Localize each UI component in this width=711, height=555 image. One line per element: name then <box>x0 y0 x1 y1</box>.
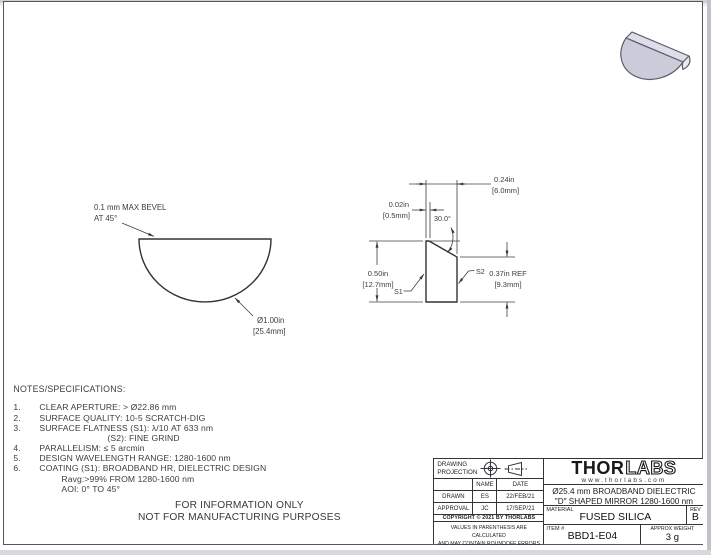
bevel-note-line2: AT 45° <box>94 214 117 223</box>
title-block-left: DRAWING PROJECTION <box>434 459 544 544</box>
approval-name: JC <box>473 503 497 515</box>
dim-flat-mm: [0.5mm] <box>383 211 410 220</box>
drawn-date: 22/FEB/21 <box>497 491 543 503</box>
note-row: 6. COATING (S1): BROADBAND HR, DIELECTRI… <box>13 463 343 473</box>
note-text: (S2): FINE GRIND <box>39 433 179 443</box>
table-cell-empty <box>434 479 473 491</box>
diameter-label-in: Ø1.00in <box>257 316 284 325</box>
approval-label: APPROVAL <box>434 503 473 515</box>
weight-cell: APPROX WEIGHT 3 g <box>640 525 703 544</box>
projection-label-line2: PROJECTION <box>437 469 477 477</box>
dim-height-in: 0.50in <box>368 269 388 278</box>
note-text: AOI: 0° TO 45° <box>39 484 120 494</box>
drawn-name: ES <box>473 491 497 503</box>
product-title-line1: Ø25.4 mm BROADBAND DIELECTRIC <box>544 487 703 497</box>
note-text: SURFACE FLATNESS (S1): λ/10 AT 633 nm <box>39 423 213 433</box>
product-title-line2: "D" SHAPED MIRROR 1280-1600 nm <box>544 497 703 507</box>
notes-heading: NOTES/SPECIFICATIONS: <box>13 384 343 394</box>
note-row: AOI: 0° TO 45° <box>13 484 343 494</box>
note-text: SURFACE QUALITY: 10-5 SCRATCH-DIG <box>39 413 205 423</box>
note-number <box>13 474 39 484</box>
note-number: 1. <box>13 402 39 412</box>
note-number: 2. <box>13 413 39 423</box>
drawn-label: DRAWN <box>434 491 473 503</box>
logo-thor: THOR <box>571 458 624 478</box>
note-text: CLEAR APERTURE: > Ø22.86 mm <box>39 402 176 412</box>
table-header-name: NAME <box>473 479 497 491</box>
material-cell: MATERIAL FUSED SILICA <box>544 506 686 524</box>
disclaimer-line1: VALUES IN PARENTHESIS ARE CALCULATED <box>434 525 543 541</box>
note-number: 3. <box>13 423 39 433</box>
disclaimer-note: VALUES IN PARENTHESIS ARE CALCULATED AND… <box>434 522 543 548</box>
projection-target-icon <box>477 459 504 478</box>
side-view <box>426 241 457 302</box>
dim-height-mm: [12.7mm] <box>363 280 394 289</box>
iso-view <box>621 32 690 79</box>
note-number: 4. <box>13 443 39 453</box>
approval-table: NAME DATE DRAWN ES 22/FEB/21 APPROVAL JC… <box>434 479 543 515</box>
product-title: Ø25.4 mm BROADBAND DIELECTRIC "D" SHAPED… <box>544 485 703 506</box>
note-number <box>13 484 39 494</box>
note-text: Ravg:>99% FROM 1280-1600 nm <box>39 474 194 484</box>
dim-width-in: 0.24in <box>494 175 514 184</box>
notes-section: NOTES/SPECIFICATIONS: 1. CLEAR APERTURE:… <box>13 384 343 493</box>
item-value: BBD1-E04 <box>544 530 640 542</box>
note-text: COATING (S1): BROADBAND HR, DIELECTRIC D… <box>39 463 266 473</box>
note-row: 1. CLEAR APERTURE: > Ø22.86 mm <box>13 402 343 412</box>
weight-value: 3 g <box>641 532 703 543</box>
drawing-canvas: 0.1 mm MAX BEVEL AT 45° Ø1.00in [25.4mm] <box>0 0 710 554</box>
disclaimer-line2: AND MAY CONTAIN ROUNDOFF ERRORS <box>434 541 543 549</box>
note-row: 5. DESIGN WAVELENGTH RANGE: 1280-1600 nm <box>13 453 343 463</box>
drawing-sheet: 0.1 mm MAX BEVEL AT 45° Ø1.00in [25.4mm] <box>3 1 703 545</box>
thorlabs-logo-text: THORLABS <box>544 460 703 477</box>
rev-value: B <box>687 511 703 523</box>
approval-date: 17/SEP/21 <box>497 503 543 515</box>
diameter-label-mm: [25.4mm] <box>253 327 286 336</box>
material-value: FUSED SILICA <box>544 511 686 523</box>
note-text: PARALLELISM: ≤ 5 arcmin <box>39 443 144 453</box>
s2-leader-line <box>459 271 475 284</box>
thorlabs-website: www.thorlabs.com <box>544 477 703 484</box>
note-number: 6. <box>13 463 39 473</box>
front-view <box>139 239 271 302</box>
title-block-right: THORLABS www.thorlabs.com Ø25.4 mm BROAD… <box>544 459 703 544</box>
title-block: DRAWING PROJECTION <box>433 458 703 544</box>
drawing-projection-cell: DRAWING PROJECTION <box>434 459 543 479</box>
dim-width-mm: [6.0mm] <box>492 186 519 195</box>
s1-leader-line <box>404 274 425 291</box>
dim-angle-arc <box>448 228 454 253</box>
table-header-date: DATE <box>497 479 543 491</box>
notice-line2: NOT FOR MANUFACTURING PURPOSES <box>94 512 384 524</box>
notice-line1: FOR INFORMATION ONLY <box>94 500 384 512</box>
material-row: MATERIAL FUSED SILICA REV B <box>544 506 703 525</box>
note-number <box>13 433 39 443</box>
note-row: Ravg:>99% FROM 1280-1600 nm <box>13 474 343 484</box>
item-cell: ITEM # BBD1-E04 <box>544 525 640 544</box>
projection-cone-icon <box>504 461 528 477</box>
bevel-note-line1: 0.1 mm MAX BEVEL <box>94 203 167 212</box>
copyright-note: COPYRIGHT © 2021 BY THORLABS <box>434 515 543 522</box>
drawing-projection-label: DRAWING PROJECTION <box>437 461 477 477</box>
diameter-leader-line <box>235 298 253 316</box>
rev-cell: REV B <box>686 506 703 524</box>
front-view-outline <box>139 239 271 302</box>
dim-angle: 30.0° <box>434 214 451 223</box>
projection-label-line1: DRAWING <box>437 461 477 469</box>
information-only-notice: FOR INFORMATION ONLY NOT FOR MANUFACTURI… <box>94 500 384 524</box>
front-view-annotations <box>122 223 253 316</box>
dim-back-in: 0.37in REF <box>490 269 528 278</box>
s1-label: S1 <box>394 287 403 296</box>
dim-back-mm: [9.3mm] <box>495 280 522 289</box>
side-view-outline <box>426 241 457 302</box>
note-row: 4. PARALLELISM: ≤ 5 arcmin <box>13 443 343 453</box>
bevel-leader-line <box>122 223 154 236</box>
note-row: (S2): FINE GRIND <box>13 433 343 443</box>
s2-label: S2 <box>476 267 485 276</box>
thorlabs-logo: THORLABS www.thorlabs.com <box>544 459 703 485</box>
note-row: 2. SURFACE QUALITY: 10-5 SCRATCH-DIG <box>13 413 343 423</box>
note-text: DESIGN WAVELENGTH RANGE: 1280-1600 nm <box>39 453 230 463</box>
item-row: ITEM # BBD1-E04 APPROX WEIGHT 3 g <box>544 525 703 544</box>
note-number: 5. <box>13 453 39 463</box>
logo-labs: LABS <box>625 458 676 478</box>
dim-flat-in: 0.02in <box>389 200 409 209</box>
note-row: 3. SURFACE FLATNESS (S1): λ/10 AT 633 nm <box>13 423 343 433</box>
